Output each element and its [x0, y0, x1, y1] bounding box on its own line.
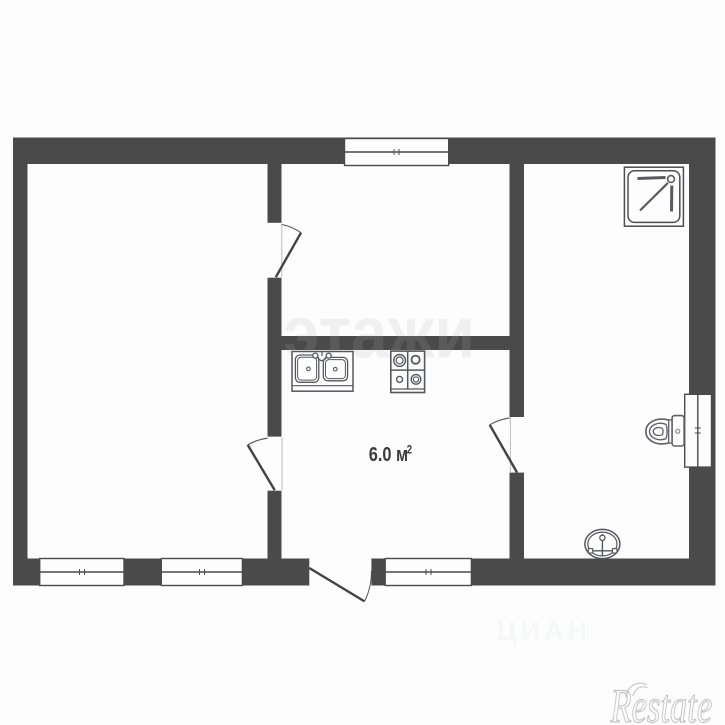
svg-text:6.0 м: 6.0 м: [369, 442, 408, 465]
svg-text:2: 2: [407, 444, 412, 457]
svg-text:ЦИАН: ЦИАН: [497, 616, 591, 646]
svg-text:Restate: Restate: [610, 681, 713, 725]
